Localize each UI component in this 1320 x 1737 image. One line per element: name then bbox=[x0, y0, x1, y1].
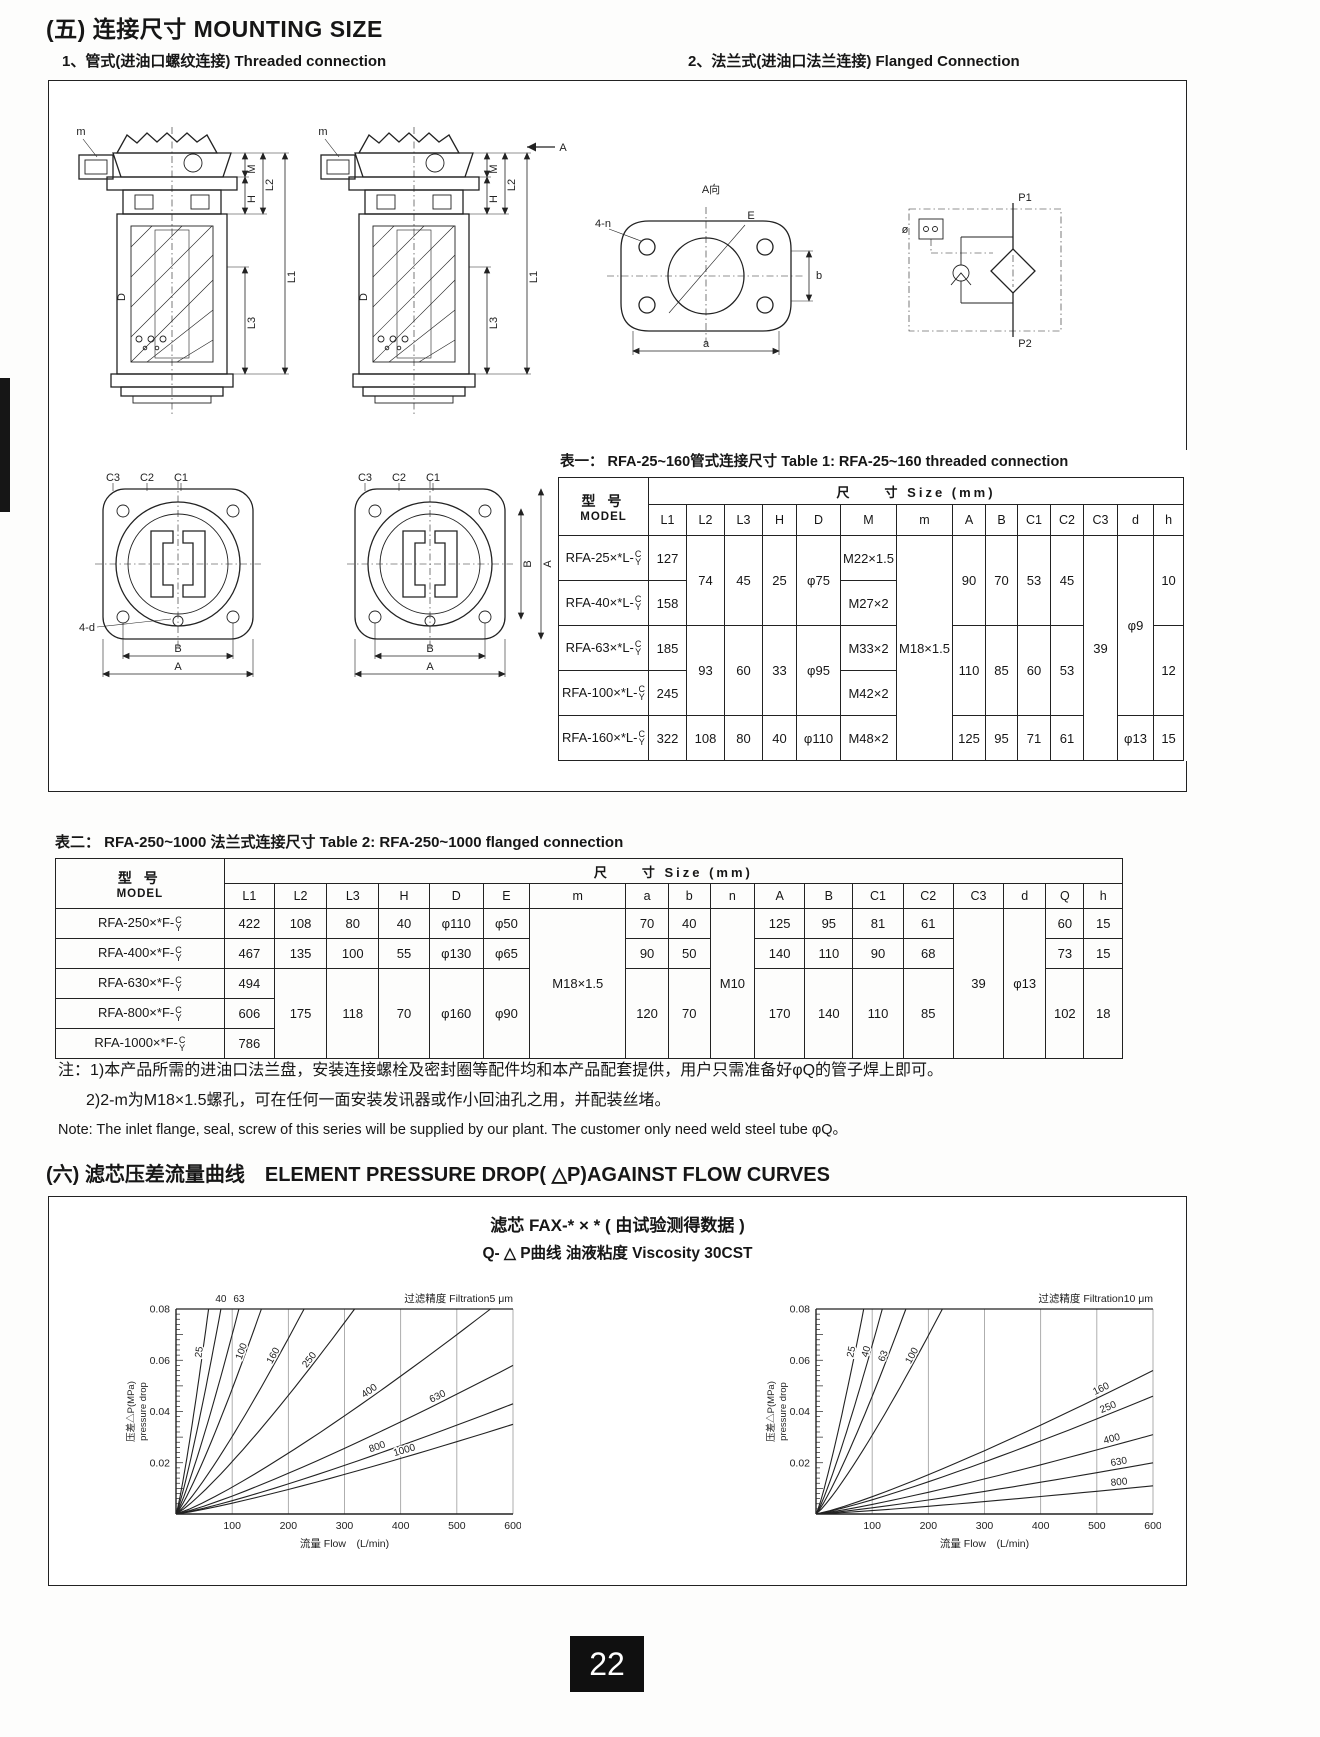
column-header: L1 bbox=[224, 884, 274, 909]
column-header: m bbox=[530, 884, 626, 909]
table-cell: 15 bbox=[1084, 909, 1123, 939]
column-header: L1 bbox=[649, 505, 687, 536]
page-number: 22 bbox=[570, 1636, 644, 1692]
model-header-zh: 型 号 bbox=[56, 868, 224, 888]
table-cell: 85 bbox=[986, 626, 1018, 716]
table-cell: φ13 bbox=[1004, 909, 1046, 1059]
dim-label-4d: 4-d bbox=[79, 622, 95, 634]
model-text: RFA-25×*L- bbox=[566, 550, 634, 565]
table-cell: 467 bbox=[224, 939, 274, 969]
model-cell: RFA-400×*F-CY bbox=[56, 939, 225, 969]
table-cell: 90 bbox=[953, 536, 986, 626]
column-header: M bbox=[841, 505, 897, 536]
table-cell: 140 bbox=[805, 969, 853, 1059]
table-cell: 135 bbox=[274, 939, 326, 969]
table-cell: φ50 bbox=[483, 909, 529, 939]
svg-text:800: 800 bbox=[368, 1439, 388, 1455]
column-header: d bbox=[1004, 884, 1046, 909]
model-text: RFA-630×*F- bbox=[98, 975, 174, 990]
suffix-bot: Y bbox=[639, 693, 646, 701]
column-header: C3 bbox=[953, 884, 1003, 909]
svg-text:pressure drop: pressure drop bbox=[778, 1382, 789, 1441]
model-text: RFA-400×*F- bbox=[98, 945, 174, 960]
table-cell: φ110 bbox=[797, 716, 841, 761]
table-cell: φ130 bbox=[429, 939, 483, 969]
svg-text:300: 300 bbox=[976, 1520, 994, 1532]
table-cell: 80 bbox=[725, 716, 763, 761]
table-cell: 15 bbox=[1154, 716, 1184, 761]
table2-flanged-connection: 型 号 MODEL 尺 寸 Size (mm) L1 L2 L3 H D E m… bbox=[55, 858, 1123, 1059]
table-cell: 61 bbox=[903, 909, 953, 939]
svg-text:100: 100 bbox=[904, 1346, 922, 1366]
table-cell: 71 bbox=[1018, 716, 1051, 761]
svg-text:流量 Flow (L/min): 流量 Flow (L/min) bbox=[300, 1537, 389, 1550]
size-header: 尺 寸 Size (mm) bbox=[649, 478, 1184, 505]
column-header: E bbox=[483, 884, 529, 909]
table-cell: 55 bbox=[379, 939, 429, 969]
model-text: RFA-40×*L- bbox=[566, 595, 634, 610]
table-cell: 85 bbox=[903, 969, 953, 1059]
model-suffix: CY bbox=[175, 916, 182, 932]
table-cell: M42×2 bbox=[841, 671, 897, 716]
svg-text:500: 500 bbox=[1088, 1520, 1106, 1532]
column-header: C2 bbox=[1051, 505, 1084, 536]
model-suffix: CY bbox=[635, 640, 642, 656]
svg-text:0.08: 0.08 bbox=[790, 1304, 811, 1316]
table-cell: 494 bbox=[224, 969, 274, 999]
table-cell: 95 bbox=[805, 909, 853, 939]
model-header-en: MODEL bbox=[559, 511, 648, 523]
threaded-connection-label: 1、管式(进油口螺纹连接) Threaded connection bbox=[62, 50, 386, 71]
table-cell: 245 bbox=[649, 671, 687, 716]
table-cell: φ13 bbox=[1118, 716, 1154, 761]
svg-text:63: 63 bbox=[877, 1349, 891, 1364]
model-text: RFA-250×*F- bbox=[98, 915, 174, 930]
port-label-P2: P2 bbox=[1018, 338, 1031, 350]
table-cell: 175 bbox=[274, 969, 326, 1059]
svg-text:过滤精度 Filtration5 μm: 过滤精度 Filtration5 μm bbox=[404, 1292, 513, 1305]
table-cell: 108 bbox=[687, 716, 725, 761]
table-cell: 422 bbox=[224, 909, 274, 939]
svg-text:400: 400 bbox=[1032, 1520, 1050, 1532]
svg-text:200: 200 bbox=[280, 1520, 298, 1532]
table-cell: 110 bbox=[853, 969, 903, 1059]
model-cell: RFA-25×*L-CY bbox=[559, 536, 649, 581]
table-cell: M22×1.5 bbox=[841, 536, 897, 581]
view-label-A: A向 bbox=[702, 182, 720, 196]
table-cell: 15 bbox=[1084, 939, 1123, 969]
threaded-filter-side-view bbox=[76, 126, 298, 415]
view-direction-arrow-label: A bbox=[559, 142, 567, 154]
table-cell: 786 bbox=[224, 1029, 274, 1059]
table-cell: 50 bbox=[668, 939, 710, 969]
dim-label-a: a bbox=[703, 338, 710, 350]
dim-label-B-vertical: B bbox=[522, 560, 534, 567]
svg-text:压差△P(MPa): 压差△P(MPa) bbox=[765, 1381, 777, 1442]
table-cell: 39 bbox=[953, 909, 1003, 1059]
table-cell: 60 bbox=[725, 626, 763, 716]
table-cell: 110 bbox=[805, 939, 853, 969]
table1-title-en: Table 1: RFA-25~160 threaded connection bbox=[781, 454, 1068, 470]
column-header: B bbox=[986, 505, 1018, 536]
table-cell: φ90 bbox=[483, 969, 529, 1059]
column-header: B bbox=[805, 884, 853, 909]
column-header: D bbox=[429, 884, 483, 909]
section6-title: (六) 滤芯压差流量曲线 ELEMENT PRESSURE DROP( △P)A… bbox=[46, 1158, 830, 1187]
column-header: L3 bbox=[725, 505, 763, 536]
table-cell: 33 bbox=[763, 626, 797, 716]
svg-text:100: 100 bbox=[223, 1520, 241, 1532]
model-suffix: CY bbox=[175, 1006, 182, 1022]
table-row: RFA-250×*F-CY 422 108 80 40 φ110 φ50 M18… bbox=[56, 909, 1123, 939]
table-cell: 322 bbox=[649, 716, 687, 761]
table-cell: 125 bbox=[953, 716, 986, 761]
svg-text:25: 25 bbox=[193, 1345, 206, 1358]
suffix-bot: Y bbox=[635, 558, 642, 566]
model-suffix: CY bbox=[639, 730, 646, 746]
svg-text:100: 100 bbox=[234, 1341, 250, 1361]
column-header: a bbox=[626, 884, 668, 909]
svg-text:63: 63 bbox=[233, 1294, 245, 1305]
table1-threaded-connection: 型 号 MODEL 尺 寸 Size (mm) L1 L2 L3 H D M m… bbox=[558, 477, 1184, 761]
table-cell: 40 bbox=[763, 716, 797, 761]
model-text: RFA-63×*L- bbox=[566, 640, 634, 655]
svg-text:160: 160 bbox=[1091, 1380, 1111, 1397]
pressure-drop-chart-10um: 0.020.040.060.08100200300400500600过滤精度 F… bbox=[761, 1289, 1161, 1569]
suffix-bot: Y bbox=[639, 738, 646, 746]
dim-label-E: E bbox=[747, 210, 754, 222]
table-cell: M33×2 bbox=[841, 626, 897, 671]
dim-label-phi: ø bbox=[902, 224, 909, 236]
table1-title-zh: 表一： RFA-25~160管式连接尺寸 bbox=[560, 454, 777, 470]
model-cell: RFA-100×*L-CY bbox=[559, 671, 649, 716]
svg-text:630: 630 bbox=[1110, 1455, 1129, 1469]
note-line-1: 注：1)本产品所需的进油口法兰盘，安装连接螺栓及密封圈等配件均和本产品配套提供，… bbox=[58, 1056, 943, 1080]
port-label-P1: P1 bbox=[1018, 192, 1031, 204]
suffix-bot: Y bbox=[175, 954, 182, 962]
threaded-filter-bottom-view: 4-d bbox=[79, 472, 261, 677]
table-cell: 68 bbox=[903, 939, 953, 969]
table-cell: 45 bbox=[1051, 536, 1084, 626]
table-cell: φ65 bbox=[483, 939, 529, 969]
model-cell: RFA-63×*L-CY bbox=[559, 626, 649, 671]
svg-text:600: 600 bbox=[1144, 1520, 1161, 1532]
table-cell: 70 bbox=[986, 536, 1018, 626]
table-cell: 70 bbox=[379, 969, 429, 1059]
model-suffix: CY bbox=[639, 685, 646, 701]
table-cell: 140 bbox=[755, 939, 805, 969]
model-cell: RFA-40×*L-CY bbox=[559, 581, 649, 626]
model-suffix: CY bbox=[175, 976, 182, 992]
table-cell: 70 bbox=[626, 909, 668, 939]
table-cell: 93 bbox=[687, 626, 725, 716]
table-cell: 110 bbox=[953, 626, 986, 716]
table-cell: 61 bbox=[1051, 716, 1084, 761]
model-suffix: CY bbox=[179, 1036, 186, 1052]
table-row: RFA-25×*L-CY 127 74 45 25 φ75 M22×1.5 M1… bbox=[559, 536, 1184, 581]
svg-text:630: 630 bbox=[428, 1388, 448, 1405]
table-cell: 158 bbox=[649, 581, 687, 626]
svg-text:0.04: 0.04 bbox=[150, 1406, 171, 1418]
column-header: d bbox=[1118, 505, 1154, 536]
svg-text:1000: 1000 bbox=[392, 1442, 417, 1459]
table-cell: 12 bbox=[1154, 626, 1184, 716]
table-cell: φ75 bbox=[797, 536, 841, 626]
note-line-3: Note: The inlet flange, seal, screw of t… bbox=[58, 1118, 847, 1139]
table-cell: M48×2 bbox=[841, 716, 897, 761]
model-cell: RFA-250×*F-CY bbox=[56, 909, 225, 939]
model-text: RFA-1000×*F- bbox=[94, 1035, 177, 1050]
flanged-connection-label: 2、法兰式(进油口法兰连接) Flanged Connection bbox=[688, 50, 1020, 71]
flange-face-drawing: A向 E 4-n a b bbox=[595, 182, 822, 355]
svg-text:500: 500 bbox=[448, 1520, 466, 1532]
table1-title: 表一： RFA-25~160管式连接尺寸 Table 1: RFA-25~160… bbox=[560, 450, 1190, 471]
table-cell: 39 bbox=[1084, 536, 1118, 761]
table-cell: φ95 bbox=[797, 626, 841, 716]
table-cell: M18×1.5 bbox=[897, 536, 953, 761]
table-cell: φ110 bbox=[429, 909, 483, 939]
section5-title: (五) 连接尺寸 MOUNTING SIZE bbox=[46, 10, 383, 44]
svg-text:pressure drop: pressure drop bbox=[138, 1382, 149, 1441]
column-header: D bbox=[797, 505, 841, 536]
dim-label-A-vertical: A bbox=[542, 560, 554, 568]
catalog-page: (五) 连接尺寸 MOUNTING SIZE 1、管式(进油口螺纹连接) Thr… bbox=[0, 0, 1320, 1737]
table2-title: 表二： RFA-250~1000 法兰式连接尺寸 Table 2: RFA-25… bbox=[55, 831, 623, 852]
table-cell: 606 bbox=[224, 999, 274, 1029]
table-cell: 40 bbox=[379, 909, 429, 939]
flanged-filter-bottom-view: B A bbox=[347, 472, 554, 677]
svg-text:0.02: 0.02 bbox=[150, 1457, 171, 1469]
column-header: L3 bbox=[327, 884, 379, 909]
model-suffix: CY bbox=[635, 595, 642, 611]
svg-text:0.06: 0.06 bbox=[150, 1355, 171, 1367]
table-cell: 60 bbox=[1046, 909, 1084, 939]
suffix-bot: Y bbox=[175, 984, 182, 992]
svg-text:250: 250 bbox=[300, 1350, 319, 1370]
table-cell: 185 bbox=[649, 626, 687, 671]
table2-model-header: 型 号 MODEL bbox=[56, 859, 225, 909]
table1-model-header: 型 号 MODEL bbox=[559, 478, 649, 536]
suffix-bot: Y bbox=[179, 1044, 186, 1052]
table2-title-en: Table 2: RFA-250~1000 flanged connection bbox=[320, 834, 624, 851]
column-header: C2 bbox=[903, 884, 953, 909]
model-text: RFA-160×*L- bbox=[562, 730, 638, 745]
column-header: C3 bbox=[1084, 505, 1118, 536]
table-cell: 70 bbox=[668, 969, 710, 1059]
column-header: C1 bbox=[1018, 505, 1051, 536]
size-header: 尺 寸 Size (mm) bbox=[224, 859, 1122, 884]
table-cell: 10 bbox=[1154, 536, 1184, 626]
table-cell: 40 bbox=[668, 909, 710, 939]
svg-text:压差△P(MPa): 压差△P(MPa) bbox=[125, 1381, 137, 1442]
table2-title-zh: 表二： RFA-250~1000 法兰式连接尺寸 bbox=[55, 834, 316, 851]
svg-text:0.04: 0.04 bbox=[790, 1406, 811, 1418]
suffix-bot: Y bbox=[175, 1014, 182, 1022]
suffix-bot: Y bbox=[635, 648, 642, 656]
table-cell: 74 bbox=[687, 536, 725, 626]
table-cell: φ160 bbox=[429, 969, 483, 1059]
table-cell: M18×1.5 bbox=[530, 909, 626, 1059]
svg-text:0.08: 0.08 bbox=[150, 1304, 171, 1316]
column-header: n bbox=[710, 884, 754, 909]
svg-text:160: 160 bbox=[265, 1346, 283, 1366]
table-cell: 102 bbox=[1046, 969, 1084, 1059]
model-suffix: CY bbox=[635, 550, 642, 566]
table-cell: 170 bbox=[755, 969, 805, 1059]
suffix-bot: Y bbox=[635, 603, 642, 611]
column-header: m bbox=[897, 505, 953, 536]
svg-text:800: 800 bbox=[1110, 1476, 1128, 1489]
pressure-drop-chart-5um: 0.020.040.060.08100200300400500600过滤精度 F… bbox=[121, 1289, 521, 1569]
chart-subtitle: Q- △ P曲线 油液粘度 Viscosity 30CST bbox=[49, 1241, 1186, 1263]
dim-label-b: b bbox=[816, 270, 822, 282]
table-cell: 25 bbox=[763, 536, 797, 626]
table-cell: 118 bbox=[327, 969, 379, 1059]
svg-text:0.06: 0.06 bbox=[790, 1355, 811, 1367]
model-text: RFA-800×*F- bbox=[98, 1005, 174, 1020]
model-cell: RFA-800×*F-CY bbox=[56, 999, 225, 1029]
model-header-zh: 型 号 bbox=[559, 491, 648, 511]
column-header: H bbox=[379, 884, 429, 909]
note-line-2: 2)2-m为M18×1.5螺孔，可在任何一面安装发讯器或作小回油孔之用，并配装丝… bbox=[86, 1086, 671, 1110]
svg-text:400: 400 bbox=[360, 1382, 380, 1401]
column-header: h bbox=[1084, 884, 1123, 909]
svg-text:流量 Flow (L/min): 流量 Flow (L/min) bbox=[940, 1537, 1029, 1550]
column-header: h bbox=[1154, 505, 1184, 536]
column-header: A bbox=[755, 884, 805, 909]
column-header: C1 bbox=[853, 884, 903, 909]
table-cell: 108 bbox=[274, 909, 326, 939]
curves-panel: 滤芯 FAX-* × * ( 由试验测得数据 ) Q- △ P曲线 油液粘度 V… bbox=[48, 1196, 1187, 1586]
table-cell: M27×2 bbox=[841, 581, 897, 626]
table-cell: 81 bbox=[853, 909, 903, 939]
svg-text:400: 400 bbox=[392, 1520, 410, 1532]
table-cell: 127 bbox=[649, 536, 687, 581]
svg-text:0.02: 0.02 bbox=[790, 1457, 811, 1469]
table-cell: 95 bbox=[986, 716, 1018, 761]
svg-text:100: 100 bbox=[863, 1520, 881, 1532]
table-cell: M10 bbox=[710, 909, 754, 1059]
suffix-bot: Y bbox=[175, 924, 182, 932]
table-cell: 100 bbox=[327, 939, 379, 969]
svg-text:300: 300 bbox=[336, 1520, 354, 1532]
table1-block: 表一： RFA-25~160管式连接尺寸 Table 1: RFA-25~160… bbox=[556, 450, 1190, 761]
svg-text:400: 400 bbox=[1102, 1432, 1121, 1447]
table-cell: 73 bbox=[1046, 939, 1084, 969]
model-cell: RFA-630×*F-CY bbox=[56, 969, 225, 999]
column-header: A bbox=[953, 505, 986, 536]
svg-text:200: 200 bbox=[920, 1520, 938, 1532]
dim-label-4n: 4-n bbox=[595, 218, 611, 230]
svg-text:过滤精度 Filtration10 μm: 过滤精度 Filtration10 μm bbox=[1038, 1292, 1153, 1305]
model-header-en: MODEL bbox=[56, 888, 224, 900]
column-header: L2 bbox=[274, 884, 326, 909]
chart-title: 滤芯 FAX-* × * ( 由试验测得数据 ) bbox=[49, 1211, 1186, 1236]
table-cell: 53 bbox=[1018, 536, 1051, 626]
table-cell: 90 bbox=[853, 939, 903, 969]
model-suffix: CY bbox=[175, 946, 182, 962]
hydraulic-symbol: P1 P2 ø bbox=[902, 192, 1061, 350]
table-cell: 53 bbox=[1051, 626, 1084, 716]
left-edge-mark bbox=[0, 378, 10, 512]
table-cell: 90 bbox=[626, 939, 668, 969]
table-cell: 80 bbox=[327, 909, 379, 939]
model-cell: RFA-160×*L-CY bbox=[559, 716, 649, 761]
table-cell: 60 bbox=[1018, 626, 1051, 716]
table-cell: 18 bbox=[1084, 969, 1123, 1059]
table-cell: 45 bbox=[725, 536, 763, 626]
column-header: Q bbox=[1046, 884, 1084, 909]
table-cell: 125 bbox=[755, 909, 805, 939]
svg-text:600: 600 bbox=[504, 1520, 521, 1532]
svg-text:40: 40 bbox=[215, 1294, 227, 1305]
column-header: L2 bbox=[687, 505, 725, 536]
column-header: H bbox=[763, 505, 797, 536]
model-cell: RFA-1000×*F-CY bbox=[56, 1029, 225, 1059]
model-text: RFA-100×*L- bbox=[562, 685, 638, 700]
svg-text:250: 250 bbox=[1098, 1399, 1118, 1416]
table-cell: 120 bbox=[626, 969, 668, 1059]
column-header: b bbox=[668, 884, 710, 909]
flanged-filter-side-view: A bbox=[318, 126, 567, 415]
table-cell: φ9 bbox=[1118, 536, 1154, 716]
